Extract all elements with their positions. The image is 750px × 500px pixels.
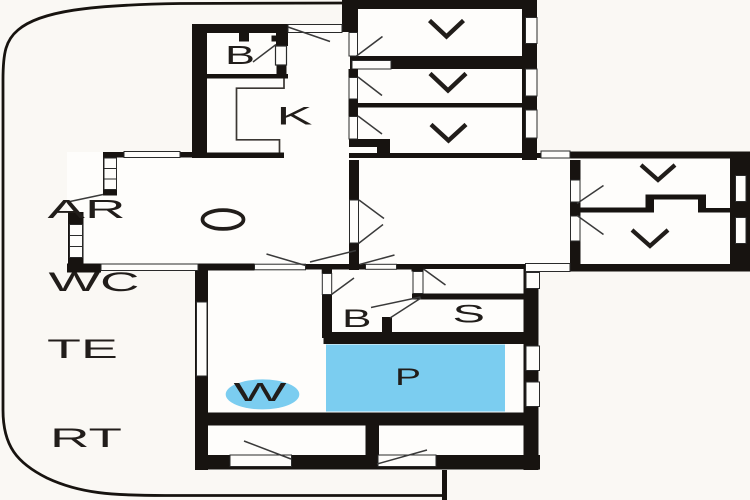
svg-text:TE: TE: [47, 334, 118, 364]
svg-text:B: B: [342, 305, 372, 333]
svg-text:K: K: [277, 103, 314, 131]
svg-text:AR: AR: [48, 194, 126, 224]
svg-text:S: S: [453, 301, 486, 329]
svg-text:W: W: [234, 377, 288, 407]
svg-text:P: P: [395, 364, 421, 391]
svg-text:B: B: [225, 42, 255, 70]
svg-text:WC: WC: [49, 267, 140, 297]
svg-text:RT: RT: [50, 423, 122, 453]
